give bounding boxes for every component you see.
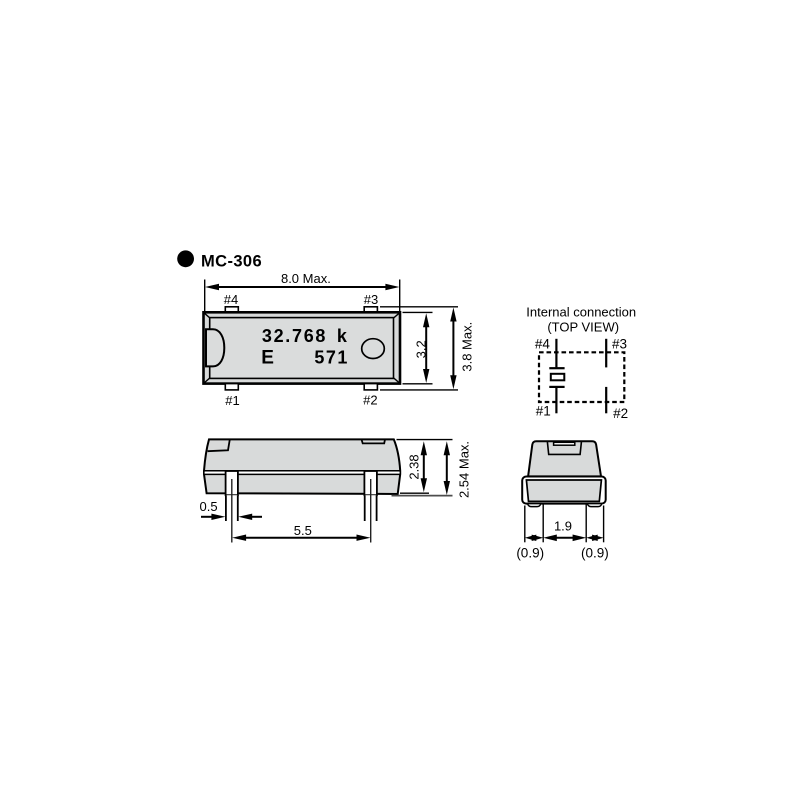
- svg-text:#2: #2: [363, 392, 377, 407]
- svg-text:E: E: [261, 348, 274, 369]
- svg-text:8.0 Max.: 8.0 Max.: [281, 271, 331, 286]
- svg-text:3.8 Max.: 3.8 Max.: [460, 322, 475, 372]
- svg-text:5.5: 5.5: [294, 523, 312, 538]
- svg-text:#3: #3: [612, 336, 627, 351]
- svg-text:1.9: 1.9: [554, 518, 572, 533]
- svg-text:2.54 Max.: 2.54 Max.: [456, 441, 471, 498]
- svg-text:(0.9): (0.9): [581, 546, 609, 561]
- svg-text:32.768: 32.768: [262, 326, 327, 346]
- svg-text:(TOP VIEW): (TOP VIEW): [547, 320, 619, 335]
- svg-text:k: k: [337, 326, 348, 346]
- svg-text:#3: #3: [364, 292, 378, 307]
- svg-text:#4: #4: [224, 292, 238, 307]
- svg-text:#1: #1: [536, 404, 551, 419]
- svg-text:#4: #4: [535, 336, 551, 351]
- svg-text:0.5: 0.5: [200, 499, 218, 514]
- svg-text:Internal connection: Internal connection: [526, 304, 636, 319]
- svg-text:(0.9): (0.9): [516, 546, 544, 561]
- svg-text:#1: #1: [225, 393, 239, 408]
- svg-text:571: 571: [314, 348, 349, 368]
- svg-text:MC-306: MC-306: [201, 253, 262, 271]
- svg-text:2.38: 2.38: [407, 454, 422, 479]
- svg-text:3.2: 3.2: [414, 340, 429, 358]
- svg-text:#2: #2: [613, 406, 628, 421]
